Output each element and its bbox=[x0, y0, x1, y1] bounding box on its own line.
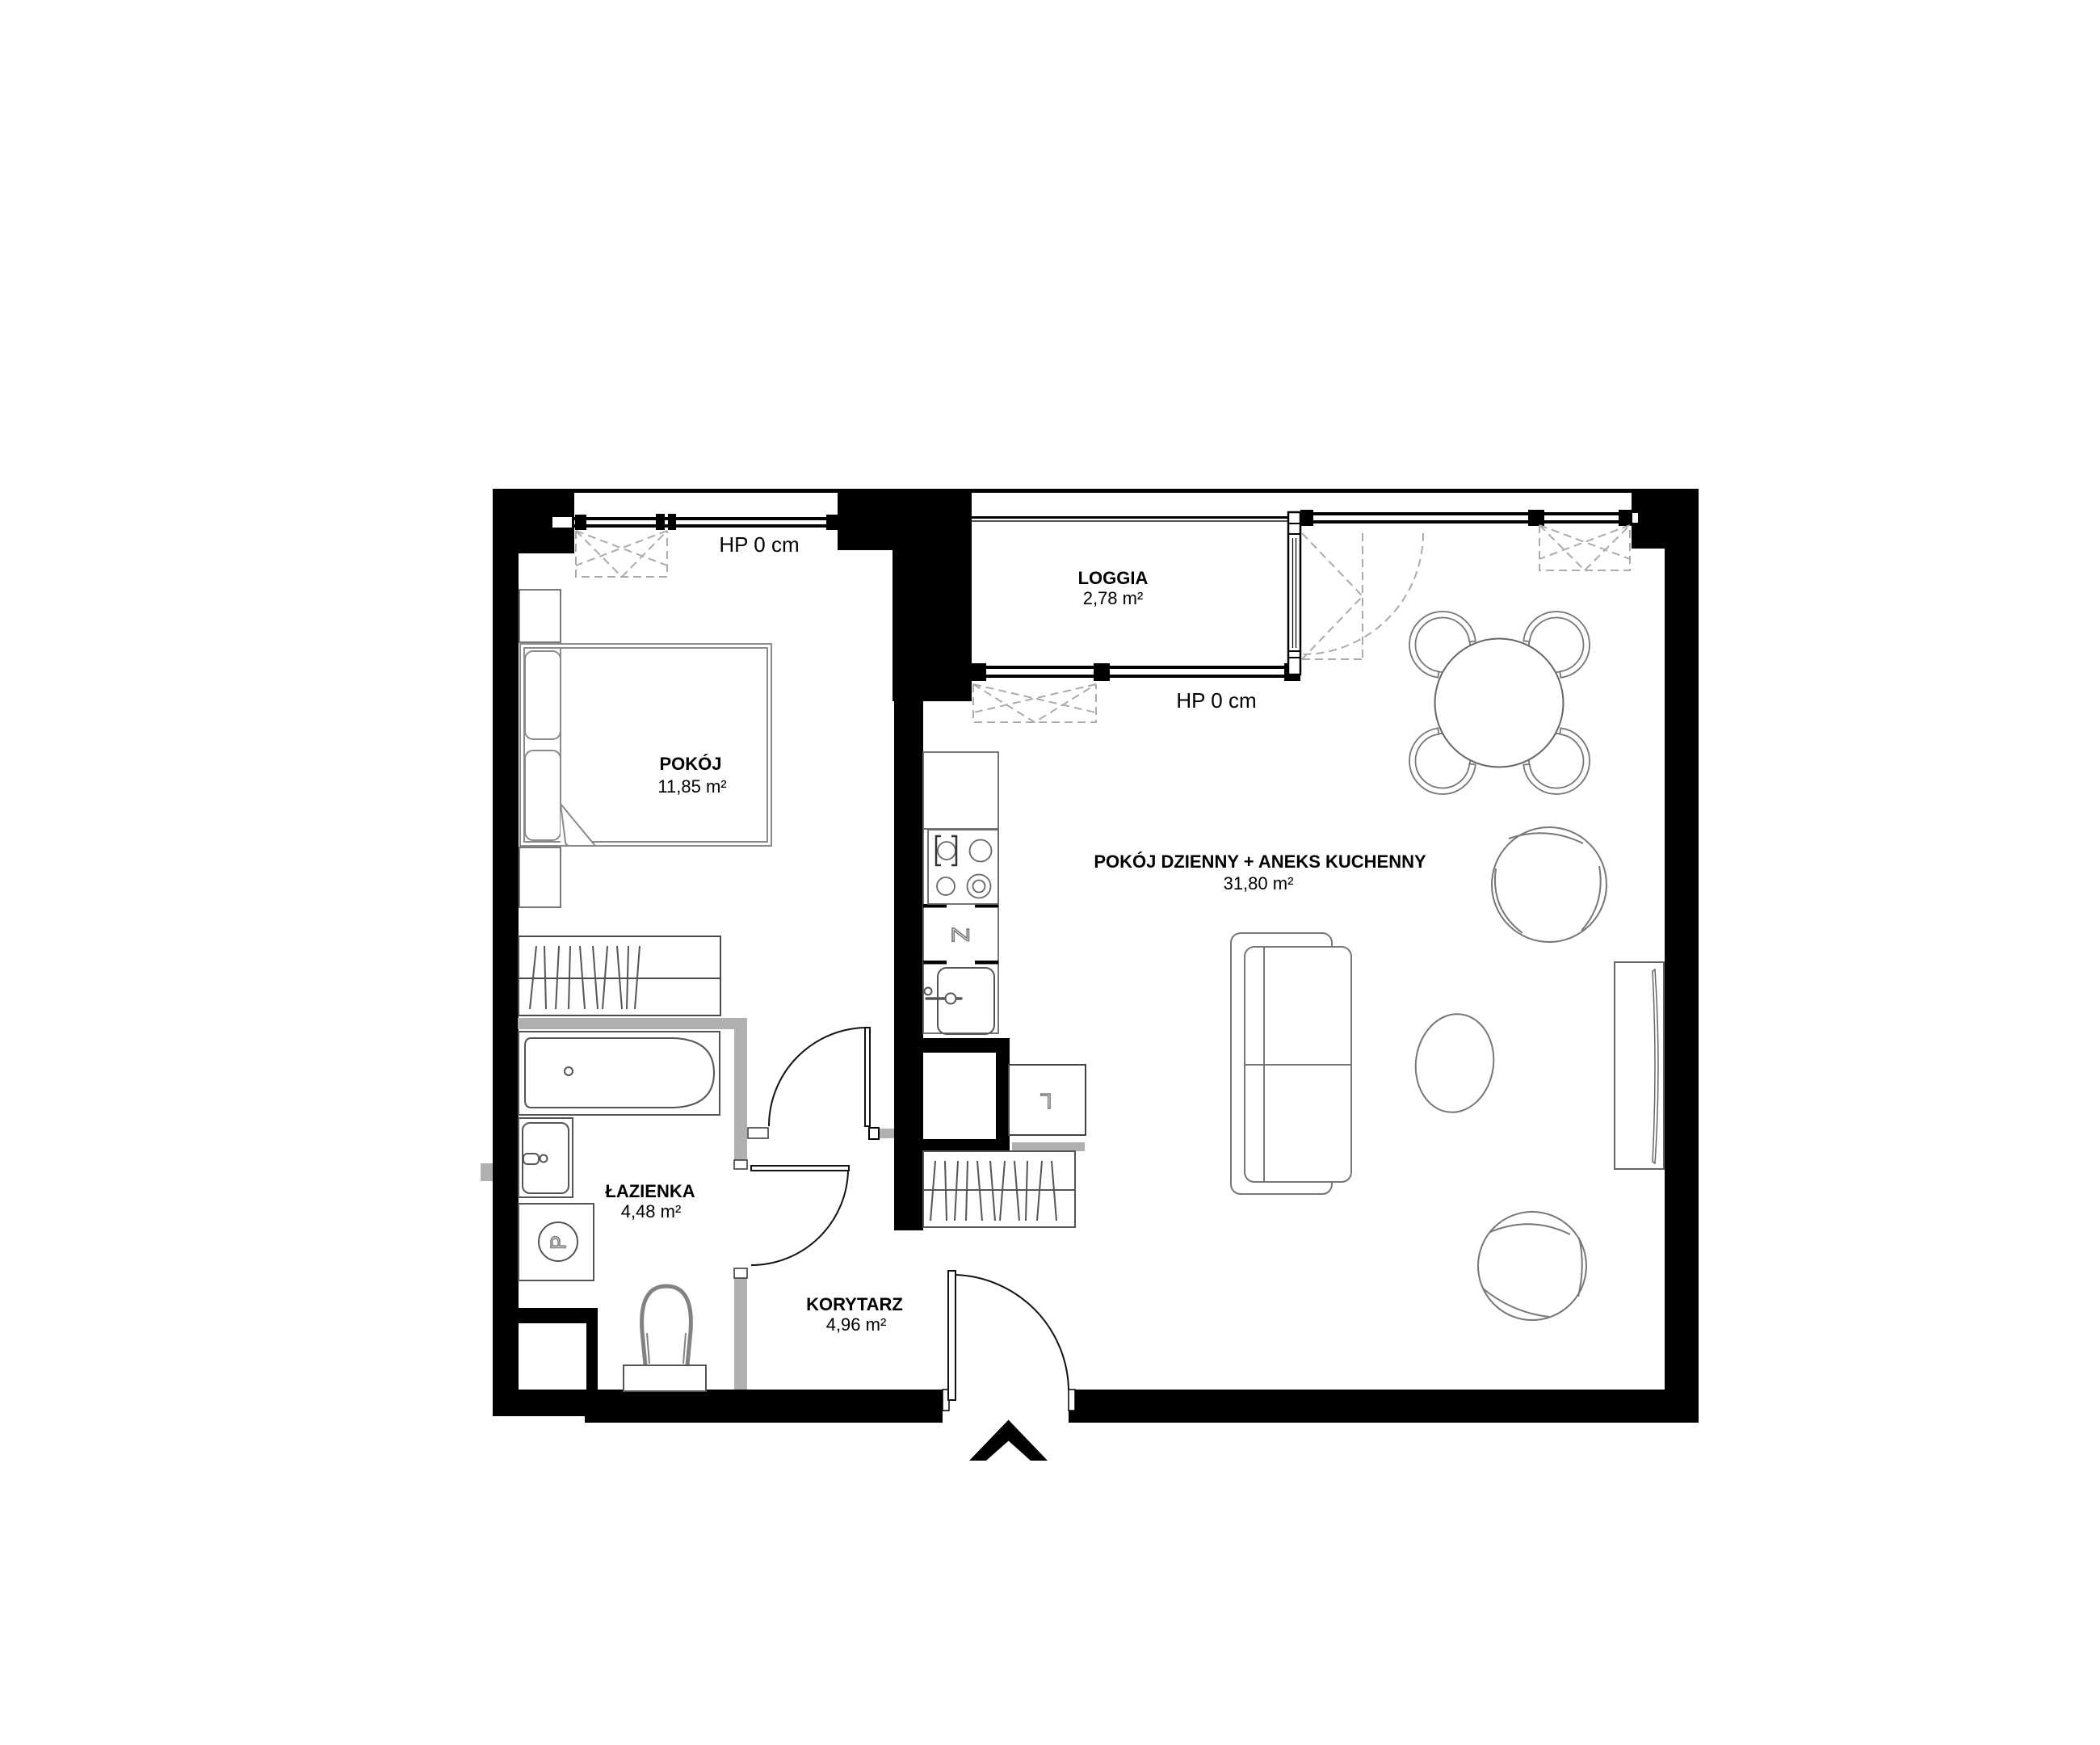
svg-text:11,85 m²: 11,85 m² bbox=[657, 776, 726, 797]
svg-text:POKÓJ DZIENNY + ANEKS KUCHENNY: POKÓJ DZIENNY + ANEKS KUCHENNY bbox=[1094, 851, 1426, 872]
svg-text:ŁAZIENKA: ŁAZIENKA bbox=[605, 1181, 695, 1201]
svg-text:2,78 m²: 2,78 m² bbox=[1083, 588, 1144, 608]
svg-text:KORYTARZ: KORYTARZ bbox=[806, 1294, 903, 1314]
svg-text:31,80 m²: 31,80 m² bbox=[1224, 873, 1294, 894]
svg-text:LOGGIA: LOGGIA bbox=[1078, 568, 1149, 588]
svg-text:4,48 m²: 4,48 m² bbox=[621, 1201, 682, 1221]
svg-text:Z: Z bbox=[947, 927, 973, 942]
svg-text:POKÓJ: POKÓJ bbox=[659, 754, 721, 774]
svg-text:HP 0 cm: HP 0 cm bbox=[1176, 688, 1256, 713]
svg-text:4,96 m²: 4,96 m² bbox=[826, 1314, 887, 1335]
svg-text:HP 0 cm: HP 0 cm bbox=[719, 532, 799, 557]
svg-text:L: L bbox=[1040, 1089, 1052, 1113]
svg-text:P: P bbox=[546, 1235, 570, 1249]
